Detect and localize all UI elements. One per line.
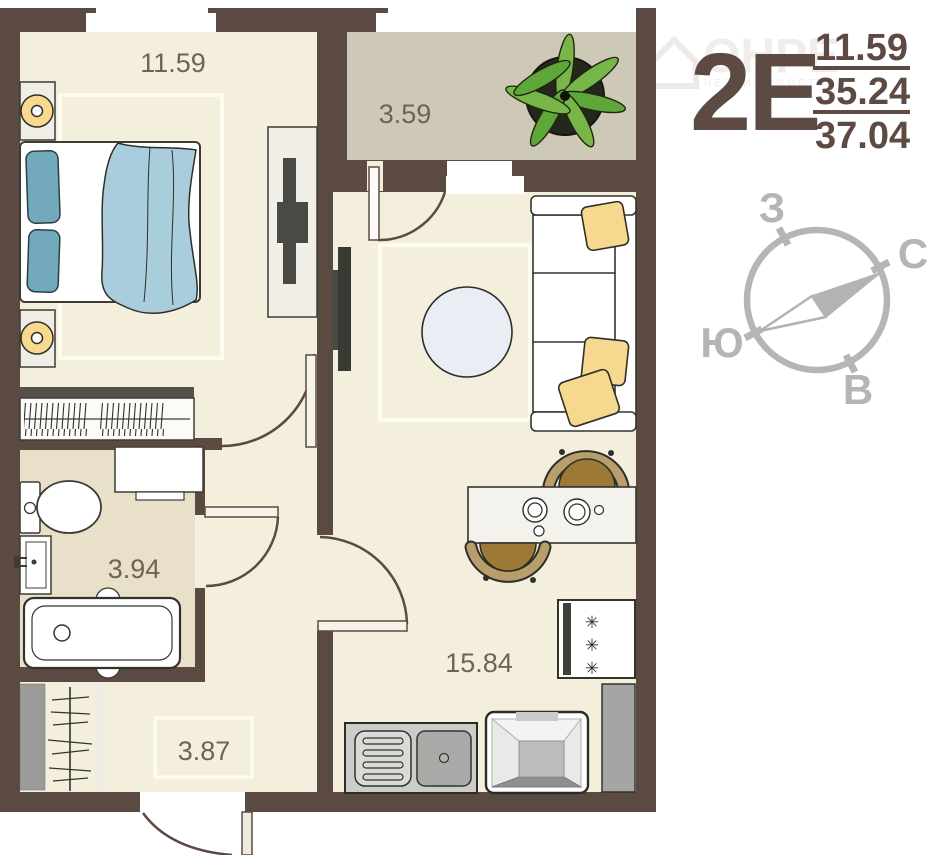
chair-knob	[559, 449, 565, 455]
drainboard-slot	[363, 774, 403, 780]
area-value-total: 37.04	[815, 115, 910, 157]
table-lamp-center	[32, 333, 43, 344]
dining-table	[468, 487, 636, 543]
balcony-door-leaf	[369, 167, 379, 240]
wall-center-lower	[317, 630, 333, 792]
tv-icon	[277, 202, 308, 243]
chair-knob	[530, 577, 536, 583]
sink-drain	[440, 754, 449, 763]
toilet-button	[25, 503, 36, 514]
entrance-door-leaf	[242, 812, 252, 855]
floor-plan-image: ОНРЕ НЕДВИЖИМОСТЬ	[0, 0, 929, 855]
closet-panel	[20, 684, 45, 790]
freezer-symbol: ✳	[585, 659, 599, 678]
area-value-living: 11.59	[815, 27, 908, 69]
room-label-kitchen-living: 15.84	[445, 648, 513, 678]
wall-bottom-left	[0, 792, 140, 812]
washing-machine	[115, 447, 203, 492]
compass-label-south: Ю	[700, 319, 743, 366]
balcony-inner-window-sill	[446, 176, 524, 194]
compass-label-west: З	[759, 184, 785, 231]
drainboard-slot	[363, 762, 403, 768]
table-lamp-center	[32, 106, 43, 117]
compass-needle-icon	[812, 273, 880, 317]
drainboard-slot	[363, 738, 403, 744]
faucet-knob	[32, 560, 37, 565]
compass-label-north: С	[898, 230, 928, 277]
wall-tv-icon	[338, 247, 351, 371]
balcony-window-sill	[376, 13, 636, 32]
bed-pillow	[27, 229, 60, 292]
kitchen-door-leaf	[318, 621, 407, 631]
bathroom-door-leaf	[205, 507, 278, 517]
round-table	[422, 287, 512, 377]
entrance-door-arc	[143, 813, 232, 855]
area-value-mid: 35.24	[815, 71, 910, 113]
wall-right	[636, 8, 656, 812]
bedroom-door-leaf	[306, 355, 316, 447]
wall-bathroom-right-b	[195, 588, 205, 667]
bathtub	[24, 598, 180, 668]
compass-label-east: В	[843, 366, 873, 413]
unit-info: 2Е 11.59 35.24 37.04	[690, 27, 910, 157]
fridge-hinge	[563, 603, 571, 675]
wall-bottom-right	[245, 792, 656, 812]
drainboard-slot	[363, 750, 403, 756]
freezer-symbol: ✳	[585, 613, 599, 632]
room-label-hallway: 3.87	[178, 736, 231, 766]
bathtub-drain	[54, 625, 70, 641]
balcony-window-outer	[388, 0, 636, 13]
unit-type-label: 2Е	[690, 31, 819, 154]
room-label-bedroom: 11.59	[140, 48, 206, 78]
plate	[523, 498, 547, 522]
chair-knob	[483, 575, 489, 581]
cup	[595, 506, 604, 515]
bed-blanket	[102, 143, 197, 313]
chair-knob	[608, 450, 614, 456]
wall-left	[0, 8, 20, 812]
wardrobe-front	[20, 387, 194, 398]
freezer-symbol: ✳	[585, 636, 599, 655]
stove-tab	[516, 712, 558, 721]
plate	[564, 499, 590, 525]
closet-divider	[95, 682, 104, 792]
room-label-bathroom: 3.94	[108, 554, 161, 584]
stove-center	[519, 741, 564, 777]
cup	[534, 526, 544, 536]
area-divider	[813, 66, 910, 70]
area-divider	[813, 110, 910, 114]
vent-shaft	[602, 684, 635, 792]
toilet-icon	[37, 481, 101, 533]
floor-plan-page: ОНРЕ НЕДВИЖИМОСТЬ	[0, 0, 929, 855]
room-label-balcony: 3.59	[379, 99, 432, 129]
wall-center-upper	[317, 32, 347, 192]
balcony-inner-window	[447, 161, 512, 176]
wall-center-mid	[317, 192, 333, 535]
washing-machine-door	[136, 492, 184, 500]
sofa-cushion	[580, 201, 629, 252]
compass: З С Ю В	[700, 184, 928, 413]
bedroom-window-sill	[86, 13, 216, 32]
bedroom-window-outer	[96, 0, 208, 13]
plant-center	[560, 91, 570, 101]
bed-pillow	[26, 150, 60, 223]
